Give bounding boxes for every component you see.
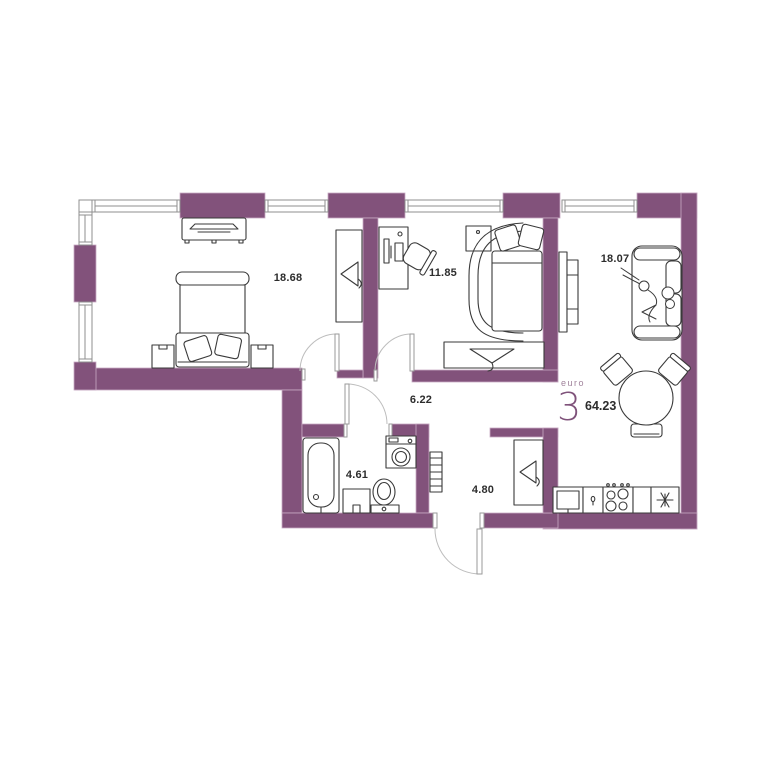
apartment-badge: euro 3 64.23 (557, 378, 616, 429)
wardrobe-hanger-icon (514, 440, 543, 505)
wall-pier-left (74, 245, 96, 302)
wall-bottom-room2 (412, 370, 558, 382)
bathtub-icon (303, 438, 339, 513)
wall-bottom-bathroom (282, 513, 437, 528)
door-jamb (344, 424, 347, 437)
tv-panel-icon (559, 252, 578, 332)
wall-pier-top-b (328, 193, 405, 218)
stove-burners-icon (603, 484, 633, 513)
floor-plan-page: 18.68 11.85 18.07 6.22 4.61 4.80 euro 3 … (0, 0, 768, 768)
chair-icon (631, 424, 662, 437)
toilet-icon (371, 479, 399, 513)
door-jamb (302, 369, 305, 380)
room-label-corridor: 4.80 (472, 484, 494, 496)
washing-machine-icon (386, 436, 416, 468)
room-label-bedroom: 18.68 (274, 272, 303, 284)
door-leaf-entrance (477, 529, 482, 574)
wall-divider-bedrooms (363, 218, 378, 378)
window-bedroom-top-2 (265, 200, 328, 212)
room-label-bathroom: 4.61 (346, 469, 368, 481)
nightstand-icon (466, 226, 491, 251)
nightstand-icon (152, 345, 174, 368)
door-arc-entrance (435, 529, 480, 574)
window-living-top (562, 200, 637, 212)
window-room2-top (405, 200, 503, 212)
door-arc-bathroom (347, 384, 387, 424)
badge-total-area: 64.23 (585, 399, 616, 413)
door-leaf-bathroom (345, 384, 349, 424)
room-label-hallway: 6.22 (410, 394, 432, 406)
wall-divider-livingroom (543, 218, 558, 382)
faucet-cabinet-icon (583, 487, 603, 513)
kitchen-counter (633, 487, 651, 513)
door-jamb (374, 370, 377, 381)
room-label-living-room: 18.07 (601, 253, 630, 265)
window-bedroom-left-2 (79, 302, 92, 362)
door-arc-room2 (375, 334, 412, 371)
floor-plan: 18.68 11.85 18.07 6.22 4.61 4.80 euro 3 … (0, 0, 768, 768)
door-jamb (433, 513, 437, 528)
wall-pier-top-c (503, 193, 560, 218)
tv-console-icon (182, 218, 246, 243)
wardrobe-hanger-icon (444, 342, 544, 371)
vanity-cabinet-icon (343, 489, 370, 513)
door-jamb (389, 424, 392, 437)
window-bedroom-left-1 (79, 212, 92, 245)
wall-bottom-bedroom (75, 368, 302, 390)
door-leaf-room2 (410, 334, 414, 371)
towel-radiator-icon (430, 452, 442, 492)
window-bedroom-top-1 (92, 200, 180, 212)
wall-bathroom-right (416, 424, 429, 513)
wall-corner-bottom-left (74, 362, 96, 390)
wall-bottom-kitchen (543, 513, 697, 529)
door-jamb (480, 513, 484, 528)
kitchen-sink-icon (553, 487, 583, 513)
room-label-second-bedroom: 11.85 (429, 267, 457, 279)
door-leaf-bedroom (335, 334, 339, 371)
wall-bottom-corridor (480, 513, 558, 528)
dining-table-icon (600, 353, 691, 437)
door-arc-bedroom (300, 334, 337, 371)
nightstand-icon (251, 345, 273, 368)
window-corner-block (79, 200, 92, 212)
wall-stub-bedroom-door (337, 370, 363, 378)
wall-bathroom-top-left (302, 424, 347, 437)
single-bed-icon (469, 223, 544, 341)
badge-room-count: 3 (557, 385, 581, 429)
wall-pier-top-a (180, 193, 265, 218)
double-bed-icon (176, 272, 249, 367)
wardrobe-hanger-icon (336, 230, 362, 322)
wall-bathroom-left (282, 390, 302, 513)
fridge-snowflake-icon (651, 487, 679, 513)
